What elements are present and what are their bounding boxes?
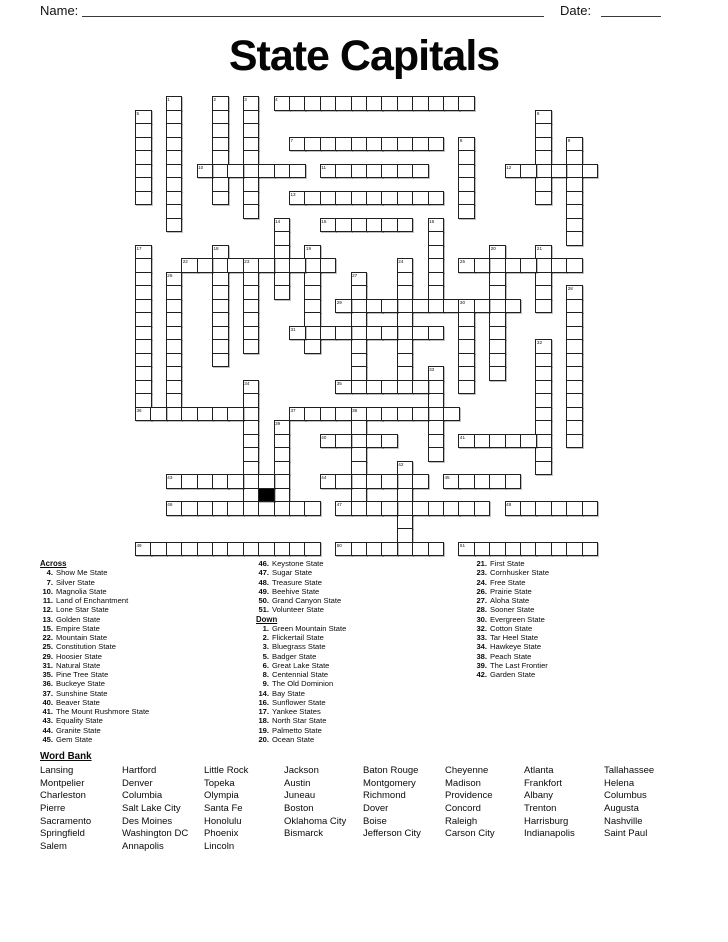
clue-text: Sunflower State (272, 698, 326, 707)
clue-number: 32. (474, 624, 487, 633)
grid-cell (227, 164, 244, 179)
clue-number: 41. (40, 707, 53, 716)
clue-text: Hoosier State (56, 652, 102, 661)
grid-cell (197, 407, 214, 422)
grid-cell (381, 191, 398, 206)
cell-number: 21 (537, 246, 542, 251)
grid-cell (320, 96, 337, 111)
word-bank-item: Salt Lake City (122, 803, 188, 816)
grid-cell (274, 245, 291, 260)
clue-item: 43.Equality State (40, 716, 254, 725)
grid-cell (166, 393, 183, 408)
clue-number: 37. (40, 689, 53, 698)
grid-cell (274, 542, 291, 557)
clue-number: 11. (40, 596, 53, 605)
grid-cell (135, 258, 152, 273)
grid-cell (212, 501, 229, 516)
grid-cell (520, 434, 537, 449)
grid-cell (243, 164, 260, 179)
cell-number: 6 (537, 111, 540, 116)
grid-cell (397, 528, 414, 543)
clue-number: 46. (256, 559, 269, 568)
grid-cell (135, 137, 152, 152)
grid-cell (520, 542, 537, 557)
grid-cell (135, 339, 152, 354)
cell-number: 46 (167, 502, 172, 507)
word-bank-item: Saint Paul (604, 828, 654, 841)
grid-cell (135, 164, 152, 179)
grid-cell (351, 420, 368, 435)
grid-cell (304, 542, 321, 557)
word-bank-item: Raleigh (445, 816, 495, 829)
clue-item: 12.Lone Star State (40, 605, 254, 614)
grid-cell (535, 123, 552, 138)
grid-cell (274, 474, 291, 489)
cell-number: 15 (321, 219, 326, 224)
grid-cell (443, 501, 460, 516)
clue-text: Beaver State (56, 698, 100, 707)
clue-text: Centennial State (272, 670, 328, 679)
clue-number: 39. (474, 661, 487, 670)
clue-text: Cotton State (490, 624, 532, 633)
grid-cell (412, 501, 429, 516)
grid-cell (489, 299, 506, 314)
cell-number: 34 (244, 381, 249, 386)
word-bank-column-3: Little RockTopekaOlympiaSanta FeHonolulu… (204, 765, 248, 854)
clue-number: 29. (40, 652, 53, 661)
grid-cell (397, 542, 414, 557)
grid-cell (566, 258, 583, 273)
grid-cell (428, 501, 445, 516)
grid-cell (351, 299, 368, 314)
cell-number: 16 (429, 219, 434, 224)
word-bank-item: Phoenix (204, 828, 248, 841)
clue-item: 49.Beehive State (256, 587, 470, 596)
grid-cell (551, 164, 568, 179)
grid-cell (212, 285, 229, 300)
clue-text: Ocean State (272, 735, 314, 744)
grid-cell (489, 285, 506, 300)
word-bank-item: Topeka (204, 778, 248, 791)
clue-item: 29.Hoosier State (40, 652, 254, 661)
clue-item: 8.Centennial State (256, 670, 470, 679)
grid-cell (428, 420, 445, 435)
clue-item: 1.Green Mountain State (256, 624, 470, 633)
grid-cell (397, 96, 414, 111)
grid-cell (243, 204, 260, 219)
grid-cell (381, 434, 398, 449)
grid-cell (566, 177, 583, 192)
grid-cell (397, 312, 414, 327)
grid-cell (551, 542, 568, 557)
clue-item: 15.Empire State (40, 624, 254, 633)
clue-number: 25. (40, 642, 53, 651)
clues-down-header: Down (256, 615, 470, 624)
grid-cell (566, 326, 583, 341)
grid-cell (335, 218, 352, 233)
clue-number: 44. (40, 726, 53, 735)
grid-cell (135, 393, 152, 408)
word-bank-item: Baton Rouge (363, 765, 421, 778)
grid-cell (397, 218, 414, 233)
grid-cell (505, 474, 522, 489)
cell-number: 49 (137, 543, 142, 548)
grid-cell (243, 447, 260, 462)
grid-cell (535, 299, 552, 314)
clue-text: Sugar State (272, 568, 312, 577)
grid-cell (351, 96, 368, 111)
grid-cell (181, 542, 198, 557)
grid-cell (412, 137, 429, 152)
cell-number: 4 (275, 97, 278, 102)
grid-cell (135, 177, 152, 192)
cell-number: 17 (137, 246, 142, 251)
clue-text: Mountain State (56, 633, 107, 642)
grid-cell (181, 474, 198, 489)
grid-cell (335, 326, 352, 341)
cell-number: 1 (167, 97, 170, 102)
clue-item: 45.Gem State (40, 735, 254, 744)
clue-text: Buckeye State (56, 679, 105, 688)
clue-number: 49. (256, 587, 269, 596)
clue-text: North Star State (272, 716, 326, 725)
grid-cell (351, 542, 368, 557)
grid-cell (351, 474, 368, 489)
grid-cell (335, 164, 352, 179)
worksheet-page: Name: Date: State Capitals 1234567891011… (0, 0, 728, 942)
clue-item: 20.Ocean State (256, 735, 470, 744)
clue-item: 26.Prairie State (474, 587, 688, 596)
grid-cell (366, 542, 383, 557)
grid-cell (351, 191, 368, 206)
grid-cell (535, 272, 552, 287)
cell-number: 28 (568, 286, 573, 291)
grid-cell (397, 272, 414, 287)
grid-cell (566, 339, 583, 354)
grid-cell (351, 461, 368, 476)
clue-number: 51. (256, 605, 269, 614)
grid-cell (166, 137, 183, 152)
grid-cell (366, 137, 383, 152)
cell-number: 13 (291, 192, 296, 197)
word-bank-item: Jefferson City (363, 828, 421, 841)
grid-cell (428, 542, 445, 557)
grid-cell (412, 299, 429, 314)
clue-item: 23.Cornhusker State (474, 568, 688, 577)
grid-cell (458, 353, 475, 368)
clue-text: Show Me State (56, 568, 108, 577)
grid-cell (366, 191, 383, 206)
clue-item: 42.Garden State (474, 670, 688, 679)
grid-cell (520, 258, 537, 273)
grid-cell (135, 366, 152, 381)
grid-cell (212, 258, 229, 273)
clue-number: 7. (40, 578, 53, 587)
clue-text: Silver State (56, 578, 95, 587)
clue-number: 43. (40, 716, 53, 725)
clue-number: 17. (256, 707, 269, 716)
clue-text: Gem State (56, 735, 92, 744)
grid-cell (166, 326, 183, 341)
name-line (82, 4, 544, 17)
grid-cell (366, 299, 383, 314)
grid-cell (566, 380, 583, 395)
grid-cell (458, 326, 475, 341)
grid-cell (304, 137, 321, 152)
word-bank-item: Augusta (604, 803, 654, 816)
cell-number: 31 (291, 327, 296, 332)
cell-number: 19 (306, 246, 311, 251)
grid-cell (335, 407, 352, 422)
word-bank-item: Carson City (445, 828, 495, 841)
grid-cell (397, 285, 414, 300)
grid-cell (474, 542, 491, 557)
word-bank-item: Salem (40, 841, 91, 854)
clue-number: 23. (474, 568, 487, 577)
clue-number: 20. (256, 735, 269, 744)
clue-text: Flickertail State (272, 633, 324, 642)
grid-cell (197, 258, 214, 273)
clue-item: 35.Pine Tree State (40, 670, 254, 679)
grid-cell (566, 420, 583, 435)
grid-cell (566, 299, 583, 314)
grid-cell (397, 407, 414, 422)
grid-cell (212, 137, 229, 152)
grid-cell (351, 434, 368, 449)
word-bank-item: Boston (284, 803, 346, 816)
clue-item: 13.Golden State (40, 615, 254, 624)
clue-number: 40. (40, 698, 53, 707)
date-label: Date: (560, 3, 591, 18)
grid-cell (351, 312, 368, 327)
clue-number: 2. (256, 633, 269, 642)
clue-number: 27. (474, 596, 487, 605)
grid-cell (243, 339, 260, 354)
clue-text: Empire State (56, 624, 100, 633)
grid-cell (397, 137, 414, 152)
grid-cell (566, 218, 583, 233)
cell-number: 20 (491, 246, 496, 251)
grid-cell (535, 258, 552, 273)
grid-cell (212, 312, 229, 327)
grid-cell (212, 177, 229, 192)
clue-item: 19.Palmetto State (256, 726, 470, 735)
grid-cell (166, 285, 183, 300)
grid-cell (566, 164, 583, 179)
grid-cell (489, 542, 506, 557)
word-bank-column-6: CheyenneMadisonProvidenceConcordRaleighC… (445, 765, 495, 841)
grid-cell (351, 366, 368, 381)
grid-cell (582, 164, 599, 179)
clues-across-header: Across (40, 559, 254, 568)
grid-cell (351, 137, 368, 152)
grid-cell (366, 434, 383, 449)
word-bank-item: Denver (122, 778, 188, 791)
grid-cell (166, 353, 183, 368)
word-bank-item: Olympia (204, 790, 248, 803)
grid-cell (197, 542, 214, 557)
grid-cell (428, 407, 445, 422)
clue-text: Land of Enchantment (56, 596, 128, 605)
grid-cell (335, 96, 352, 111)
grid-cell (566, 312, 583, 327)
grid-cell (135, 123, 152, 138)
grid-cell (535, 191, 552, 206)
cell-number: 8 (460, 138, 463, 143)
grid-cell (428, 299, 445, 314)
name-label: Name: (40, 3, 78, 18)
word-bank-column-7: AtlantaFrankfortAlbanyTrentonHarrisburgI… (524, 765, 575, 841)
grid-cell (381, 326, 398, 341)
clue-item: 50.Grand Canyon State (256, 596, 470, 605)
cell-number: 25 (460, 259, 465, 264)
grid-cell (243, 150, 260, 165)
clue-text: The Mount Rushmore State (56, 707, 149, 716)
clue-number: 14. (256, 689, 269, 698)
cell-number: 35 (337, 381, 342, 386)
clue-text: Prairie State (490, 587, 532, 596)
grid-cell (227, 258, 244, 273)
clue-number: 24. (474, 578, 487, 587)
grid-cell (428, 393, 445, 408)
grid-cell (458, 339, 475, 354)
grid-cell (243, 110, 260, 125)
word-bank-item: Cheyenne (445, 765, 495, 778)
word-bank-item: Providence (445, 790, 495, 803)
clue-text: Evergreen State (490, 615, 545, 624)
cell-number: 32 (537, 340, 542, 345)
grid-cell (535, 434, 552, 449)
clue-item: 24.Free State (474, 578, 688, 587)
word-bank-item: Lansing (40, 765, 91, 778)
grid-cell (366, 407, 383, 422)
grid-cell (274, 164, 291, 179)
grid-cell (274, 285, 291, 300)
grid-cell (535, 461, 552, 476)
grid-cell (458, 366, 475, 381)
grid-cell (243, 461, 260, 476)
grid-cell (428, 96, 445, 111)
cell-number: 48 (506, 502, 511, 507)
grid-cell (351, 285, 368, 300)
grid-cell (397, 380, 414, 395)
grid-cell (304, 339, 321, 354)
grid-cell (458, 164, 475, 179)
grid-cell (289, 542, 306, 557)
cell-number: 7 (291, 138, 294, 143)
word-bank-item: Atlanta (524, 765, 575, 778)
grid-cell (428, 245, 445, 260)
grid-cell (166, 312, 183, 327)
clue-column-3: 21.First State23.Cornhusker State24.Free… (474, 559, 688, 679)
clue-text: Aloha State (490, 596, 529, 605)
grid-cell (566, 407, 583, 422)
grid-cell (381, 474, 398, 489)
cell-number: 39 (275, 421, 280, 426)
grid-cell (412, 326, 429, 341)
grid-cell (366, 501, 383, 516)
cell-number: 23 (244, 259, 249, 264)
clue-item: 28.Sooner State (474, 605, 688, 614)
clue-item: 14.Bay State (256, 689, 470, 698)
clue-number: 5. (256, 652, 269, 661)
grid-cell (566, 150, 583, 165)
clue-text: Lone Star State (56, 605, 109, 614)
grid-cell (535, 407, 552, 422)
grid-cell (428, 231, 445, 246)
clue-text: Green Mountain State (272, 624, 346, 633)
word-bank-item: Springfield (40, 828, 91, 841)
clue-text: Sooner State (490, 605, 534, 614)
cell-number: 36 (137, 408, 142, 413)
grid-cell (243, 542, 260, 557)
cell-number: 42 (398, 462, 403, 467)
grid-cell (166, 366, 183, 381)
clue-number: 28. (474, 605, 487, 614)
grid-cell (474, 299, 491, 314)
grid-cell (458, 177, 475, 192)
grid-cell (366, 474, 383, 489)
grid-cell (458, 191, 475, 206)
clue-item: 6.Great Lake State (256, 661, 470, 670)
grid-cell (428, 285, 445, 300)
clue-text: Golden State (56, 615, 100, 624)
grid-cell (535, 177, 552, 192)
grid-cell (397, 191, 414, 206)
grid-cell (212, 326, 229, 341)
grid-cell (227, 474, 244, 489)
grid-cell (243, 326, 260, 341)
grid-cell (181, 407, 198, 422)
clue-item: 16.Sunflower State (256, 698, 470, 707)
grid-cell (397, 164, 414, 179)
grid-cell (397, 353, 414, 368)
grid-cell (243, 299, 260, 314)
grid-cell (351, 164, 368, 179)
grid-cell (412, 474, 429, 489)
word-bank-item: Columbia (122, 790, 188, 803)
clue-number: 31. (40, 661, 53, 670)
grid-cell (535, 150, 552, 165)
grid-cell (351, 501, 368, 516)
clue-number: 6. (256, 661, 269, 670)
grid-cell (535, 164, 552, 179)
grid-cell (335, 137, 352, 152)
word-bank-header: Word Bank (40, 751, 92, 762)
grid-cell (381, 96, 398, 111)
clue-text: Free State (490, 578, 525, 587)
word-bank-item: Montgomery (363, 778, 421, 791)
clue-item: 17.Yankee States (256, 707, 470, 716)
cell-number: 47 (337, 502, 342, 507)
grid-cell (351, 380, 368, 395)
grid-cell (227, 501, 244, 516)
clue-item: 44.Granite State (40, 726, 254, 735)
word-bank-item: Oklahoma City (284, 816, 346, 829)
word-bank-item: Montpelier (40, 778, 91, 791)
word-bank-item: Tallahassee (604, 765, 654, 778)
grid-cell (351, 326, 368, 341)
grid-cell (166, 204, 183, 219)
word-bank-column-4: JacksonAustinJuneauBostonOklahoma CityBi… (284, 765, 346, 841)
grid-cell (397, 339, 414, 354)
grid-cell (320, 137, 337, 152)
cell-number: 30 (460, 300, 465, 305)
grid-cell (212, 123, 229, 138)
grid-cell (566, 393, 583, 408)
grid-cell (535, 447, 552, 462)
clue-text: Sunshine State (56, 689, 108, 698)
